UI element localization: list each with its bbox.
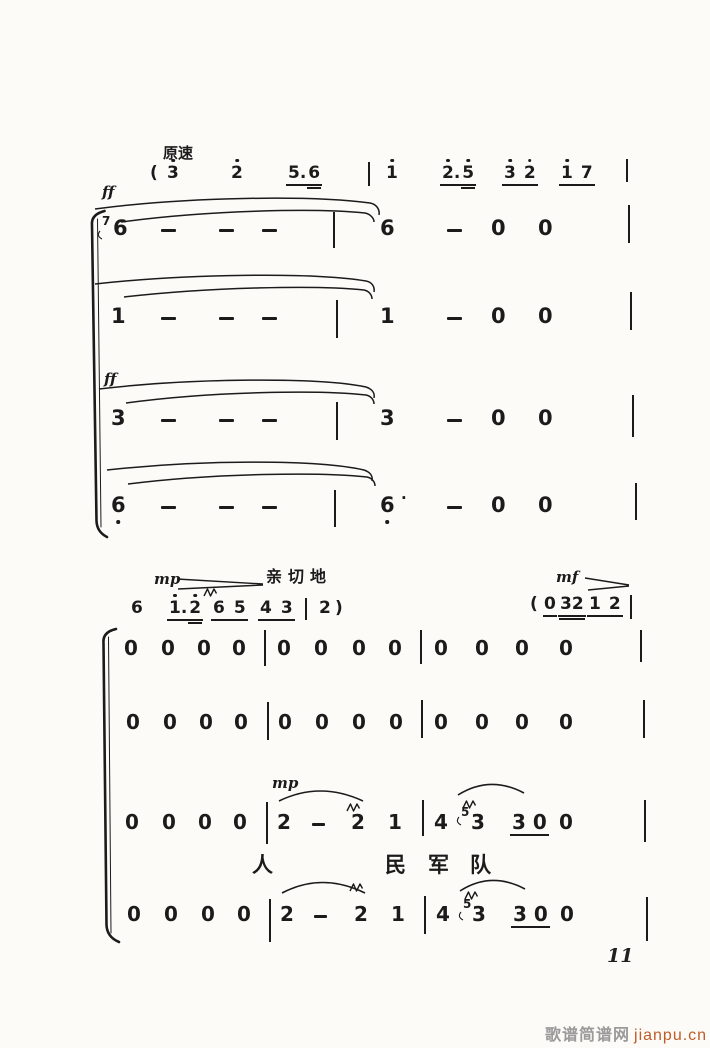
- rest-0: 0: [161, 638, 175, 658]
- rest-0: 0: [125, 812, 139, 832]
- octave-dot-above: [528, 159, 532, 163]
- ink-speck: ·: [401, 491, 407, 506]
- octave-dot-below: [117, 520, 121, 524]
- note-1: 1: [561, 165, 573, 182]
- barline: [336, 300, 338, 338]
- barline: [632, 395, 634, 437]
- rest-0: 0: [234, 712, 248, 732]
- rest-0: 0: [124, 638, 138, 658]
- note-3: 3: [111, 408, 126, 429]
- note-4: 4: [436, 904, 450, 924]
- note-3: 3: [380, 408, 395, 429]
- dash-rest: [219, 229, 234, 232]
- note-6: 6: [113, 218, 128, 239]
- dash-rest: [161, 419, 176, 422]
- tie-slur-voice4: [107, 462, 375, 486]
- dash-rest: [262, 419, 277, 422]
- dash-rest: [161, 506, 176, 509]
- beamed-group-32: 32: [502, 165, 538, 186]
- note-1: 1: [386, 165, 398, 182]
- barline: [333, 212, 335, 248]
- note-2: 2: [354, 904, 368, 924]
- rest-0: 0: [199, 712, 213, 732]
- dynamic-mp-cue: mp: [154, 572, 180, 587]
- grace-note: 5: [461, 806, 469, 818]
- note-32: 32: [560, 596, 584, 613]
- barline: [630, 292, 632, 330]
- beamed-group-2.5: 2.5: [440, 165, 476, 186]
- rest-0: 0: [543, 596, 557, 617]
- rest-0: 0: [515, 712, 529, 732]
- notation-overlay: [0, 0, 710, 1048]
- barline: [334, 490, 336, 527]
- rest-0: 0: [559, 812, 573, 832]
- barline: [421, 700, 423, 738]
- note-0: 0: [534, 904, 548, 924]
- octave-dot-above: [235, 159, 239, 163]
- dynamic-mp-voice: mp: [272, 776, 298, 791]
- beamed-group-65: 65: [211, 600, 248, 621]
- hairpin-mp: [177, 579, 263, 589]
- rest-0: 0: [515, 638, 529, 658]
- rest-0: 0: [277, 638, 291, 658]
- dynamic-ff-voice1: ff: [102, 185, 114, 200]
- octave-dot-below: [386, 520, 390, 524]
- rest-0: 0: [538, 306, 553, 327]
- dash-rest: [447, 317, 462, 320]
- rest-0: 0: [314, 638, 328, 658]
- lyric-char: 民: [385, 855, 406, 876]
- rest-0: 0: [475, 712, 489, 732]
- sixteenth-underline: [559, 618, 585, 620]
- barline: [640, 630, 642, 662]
- rest-0: 0: [352, 712, 366, 732]
- note-1: 1: [111, 306, 126, 327]
- barline: [336, 402, 338, 440]
- note-2: 2: [280, 904, 294, 924]
- beamed-group-43: 43: [258, 600, 295, 621]
- rest-0: 0: [198, 812, 212, 832]
- sixteenth-underline: [307, 187, 321, 189]
- note-2: 2: [609, 596, 621, 613]
- dash-rest: [262, 506, 277, 509]
- barline: [368, 162, 370, 186]
- dynamic-mf-cue: mf: [556, 570, 578, 585]
- rest-0: 0: [237, 904, 251, 924]
- note-3: 3: [472, 904, 486, 924]
- lyric-char: 军: [428, 855, 449, 876]
- beamed-group-5.6: 5.6: [286, 165, 322, 186]
- note-3: 3: [504, 165, 516, 182]
- dash-rest: [447, 419, 462, 422]
- note-4: 4: [260, 600, 272, 617]
- barline: [630, 595, 632, 619]
- close-paren: ): [335, 600, 343, 617]
- octave-dot-above: [193, 594, 197, 598]
- note-6: 6: [213, 600, 225, 617]
- barline: [628, 205, 630, 243]
- note-2: 2: [524, 165, 536, 182]
- rest-0: 0: [491, 306, 506, 327]
- note-1: 1: [391, 904, 405, 924]
- slur-lower-voice4: [282, 880, 525, 893]
- note-1.: 1.: [169, 600, 187, 617]
- tie-slur-voice3: [99, 380, 374, 404]
- octave-dot-above: [173, 594, 177, 598]
- rest-0: 0: [127, 904, 141, 924]
- note-2: 2: [351, 812, 365, 832]
- rest-0: 0: [197, 638, 211, 658]
- watermark: 歌谱简谱网jianpu.cn: [545, 1021, 707, 1045]
- octave-dot-above: [446, 159, 450, 163]
- rest-0: 0: [352, 638, 366, 658]
- octave-dot-above: [565, 159, 569, 163]
- system-bracket-bottom: [103, 629, 119, 942]
- sheet-music-page: 原速 ff ff mp 亲切地 mf mp 11 歌谱简谱网jianpu.cn: [0, 0, 710, 1048]
- note-5.: 5.: [288, 165, 306, 182]
- dash-rest: [219, 419, 234, 422]
- note-6: 6: [131, 600, 143, 617]
- note-5: 5: [234, 600, 246, 617]
- grace-note: 7: [102, 215, 110, 227]
- note-1: 1: [388, 812, 402, 832]
- dash-rest: [447, 229, 462, 232]
- barline: [422, 800, 424, 836]
- rest-0: 0: [232, 638, 246, 658]
- note-6-low: 6: [380, 495, 395, 516]
- rest-0: 0: [491, 495, 506, 516]
- tie-slur-voice2: [95, 275, 374, 299]
- dash-rest: [314, 915, 327, 918]
- dash-rest: [262, 229, 277, 232]
- barline: [643, 700, 645, 738]
- tempo-label: 原速: [163, 146, 193, 161]
- barline: [644, 800, 646, 842]
- rest-0: 0: [559, 638, 573, 658]
- sixteenth-underline: [461, 187, 475, 189]
- note-3: 3: [513, 904, 527, 924]
- rest-0: 0: [434, 638, 448, 658]
- beamed-group-1.2: 1.2: [167, 600, 203, 621]
- rest-0: 0: [538, 495, 553, 516]
- hairpin-mf: [585, 578, 629, 590]
- note-6: 6: [308, 165, 320, 182]
- watermark-site-url: jianpu.cn: [634, 1027, 707, 1044]
- page-number: 11: [607, 945, 633, 967]
- rest-0: 0: [559, 712, 573, 732]
- rest-0: 0: [538, 408, 553, 429]
- rest-0: 0: [434, 712, 448, 732]
- note-3: 3: [512, 812, 526, 832]
- barline: [626, 159, 628, 182]
- note-1: 1: [589, 596, 601, 613]
- note-2: 2: [189, 600, 201, 617]
- barline: [264, 630, 266, 666]
- rest-0: 0: [560, 904, 574, 924]
- open-paren: (: [530, 596, 538, 613]
- beamed-group-30: 30: [511, 904, 550, 928]
- dash-rest: [161, 229, 176, 232]
- barline: [646, 897, 648, 941]
- octave-dot-above: [508, 159, 512, 163]
- note-2: 2: [231, 165, 243, 182]
- rest-0: 0: [164, 904, 178, 924]
- beamed-group-12: 12: [587, 596, 623, 617]
- dash-rest: [161, 317, 176, 320]
- rest-0: 0: [538, 218, 553, 239]
- rest-0: 0: [389, 712, 403, 732]
- rest-0: 0: [278, 712, 292, 732]
- barline: [424, 896, 426, 934]
- beamed-group-17: 17: [559, 165, 595, 186]
- dynamic-ff-voice3: ff: [104, 372, 116, 387]
- lyric-char: 人: [252, 855, 273, 876]
- note-3: 3: [167, 165, 179, 182]
- rest-0: 0: [162, 812, 176, 832]
- octave-dot-above: [171, 159, 175, 163]
- dash-rest: [262, 317, 277, 320]
- dash-rest: [312, 823, 325, 826]
- barline: [266, 802, 268, 844]
- rest-0: 0: [315, 712, 329, 732]
- tie-slur-voice1: [95, 198, 379, 222]
- note-1: 1: [380, 306, 395, 327]
- note-6-low: 6: [111, 495, 126, 516]
- note-2.: 2.: [442, 165, 460, 182]
- rest-0: 0: [126, 712, 140, 732]
- barline: [305, 598, 307, 620]
- rest-0: 0: [233, 812, 247, 832]
- octave-dot-above: [466, 159, 470, 163]
- rest-0: 0: [388, 638, 402, 658]
- beamed-group-30: 30: [510, 812, 549, 836]
- rest-0: 0: [163, 712, 177, 732]
- rest-0: 0: [475, 638, 489, 658]
- rest-0: 0: [491, 408, 506, 429]
- barline: [635, 483, 637, 520]
- note-4: 4: [434, 812, 448, 832]
- barline: [267, 702, 269, 740]
- note-3: 3: [471, 812, 485, 832]
- rest-0: 0: [201, 904, 215, 924]
- dash-rest: [219, 317, 234, 320]
- note-2: 2: [277, 812, 291, 832]
- sixteenth-underline: [188, 622, 202, 624]
- octave-dot-above: [390, 159, 394, 163]
- rest-0: 0: [491, 218, 506, 239]
- barline: [420, 630, 422, 664]
- lyric-char: 队: [470, 855, 491, 876]
- mordent-icon: [350, 884, 363, 891]
- open-paren: (: [150, 165, 158, 182]
- expression-label: 亲切地: [266, 570, 332, 586]
- dash-rest: [219, 506, 234, 509]
- grace-note: 5: [463, 898, 471, 910]
- note-0: 0: [533, 812, 547, 832]
- beamed-group-32: 32: [558, 596, 586, 617]
- note-3: 3: [281, 600, 293, 617]
- watermark-site-name: 歌谱简谱网: [545, 1027, 630, 1044]
- note-7: 7: [581, 165, 593, 182]
- note-2: 2: [319, 600, 331, 617]
- note-5: 5: [462, 165, 474, 182]
- barline: [269, 899, 271, 942]
- dash-rest: [447, 506, 462, 509]
- slur-lower-voice3: [279, 784, 524, 801]
- note-6: 6: [380, 218, 395, 239]
- mordent-icon: [204, 589, 217, 596]
